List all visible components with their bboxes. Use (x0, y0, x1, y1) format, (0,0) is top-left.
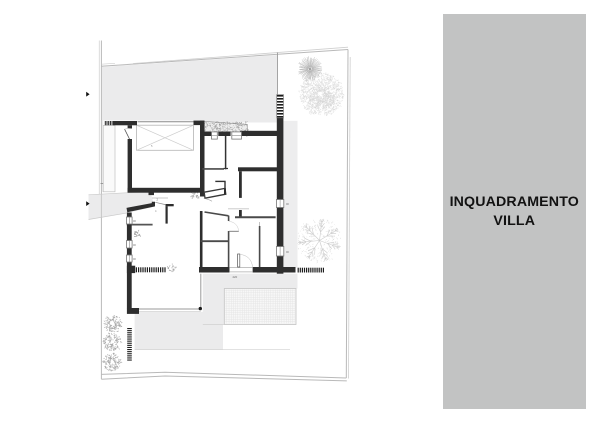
svg-text:220: 220 (233, 275, 238, 279)
